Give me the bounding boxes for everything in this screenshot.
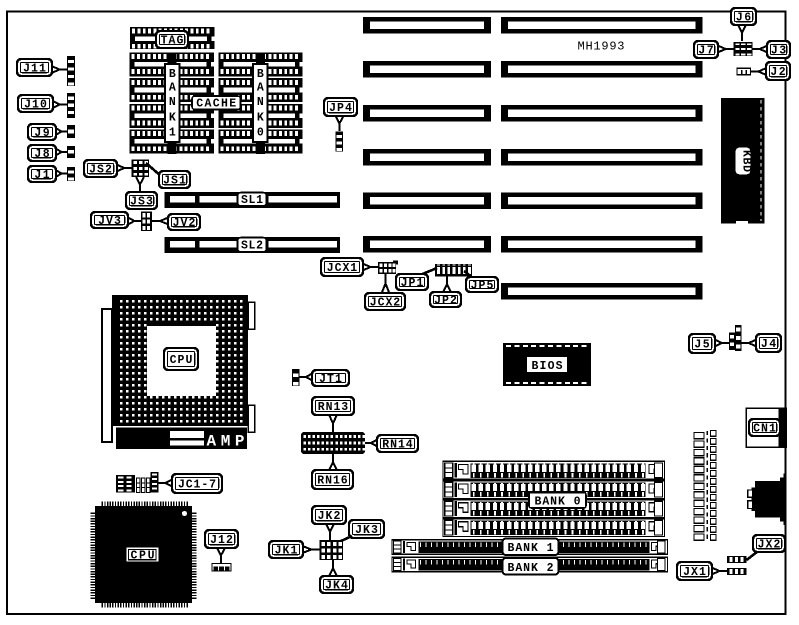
svg-text:B: B: [169, 68, 176, 81]
svg-text:J1: J1: [34, 169, 49, 182]
svg-text:BANK 1: BANK 1: [508, 542, 554, 555]
svg-text:J7: J7: [698, 45, 713, 58]
svg-text:J2: J2: [770, 66, 785, 79]
svg-text:JS1: JS1: [163, 175, 186, 188]
svg-text:BANK 2: BANK 2: [508, 562, 554, 575]
svg-text:MH1993: MH1993: [578, 40, 625, 54]
svg-text:BANK 0: BANK 0: [535, 496, 581, 509]
svg-text:JX1: JX1: [683, 566, 706, 579]
svg-text:BIOS: BIOS: [532, 360, 563, 373]
svg-text:SL1: SL1: [241, 194, 263, 207]
svg-text:JP2: JP2: [434, 295, 457, 308]
svg-text:J5: J5: [694, 339, 709, 352]
svg-text:JX2: JX2: [758, 539, 781, 552]
svg-text:CPU: CPU: [170, 354, 193, 367]
svg-text:N: N: [169, 96, 176, 109]
svg-text:KBD: KBD: [739, 150, 752, 172]
svg-text:SL2: SL2: [241, 240, 263, 253]
svg-text:JK2: JK2: [318, 510, 341, 523]
svg-text:JK3: JK3: [355, 524, 378, 537]
svg-text:JT1: JT1: [319, 373, 342, 386]
svg-text:JCX2: JCX2: [370, 297, 400, 310]
svg-text:J3: J3: [771, 45, 786, 58]
svg-text:N: N: [257, 96, 264, 109]
svg-text:RN13: RN13: [318, 401, 348, 414]
svg-text:JS2: JS2: [89, 164, 112, 177]
svg-text:A: A: [257, 82, 264, 95]
svg-text:K: K: [169, 112, 176, 125]
svg-text:AMP: AMP: [207, 433, 245, 451]
svg-text:J12: J12: [210, 534, 233, 547]
svg-text:JK4: JK4: [325, 580, 348, 593]
svg-text:CACHE: CACHE: [196, 98, 236, 111]
svg-text:JV3: JV3: [98, 215, 121, 228]
svg-text:0: 0: [257, 127, 264, 140]
svg-text:JK1: JK1: [275, 545, 298, 558]
svg-text:JP4: JP4: [329, 102, 352, 115]
svg-text:1: 1: [169, 127, 176, 140]
svg-text:J6: J6: [736, 12, 751, 25]
svg-text:TAG: TAG: [161, 35, 184, 48]
svg-text:J9: J9: [34, 127, 49, 140]
svg-text:CN1: CN1: [753, 423, 776, 436]
svg-text:CPU: CPU: [131, 550, 155, 563]
svg-text:JC1-7: JC1-7: [178, 479, 216, 492]
svg-text:J8: J8: [34, 148, 49, 161]
svg-text:J10: J10: [24, 99, 47, 112]
svg-text:J4: J4: [761, 338, 776, 351]
svg-text:A: A: [169, 82, 176, 95]
svg-text:B: B: [257, 68, 264, 81]
svg-text:RN14: RN14: [382, 439, 412, 452]
svg-text:JCX1: JCX1: [327, 262, 357, 275]
svg-text:JS3: JS3: [130, 196, 153, 209]
svg-text:JP5: JP5: [471, 280, 494, 293]
svg-text:J11: J11: [23, 63, 46, 76]
svg-text:JV2: JV2: [173, 217, 196, 230]
svg-text:RN16: RN16: [317, 475, 347, 488]
svg-text:JP1: JP1: [401, 277, 424, 290]
svg-text:K: K: [257, 112, 264, 125]
